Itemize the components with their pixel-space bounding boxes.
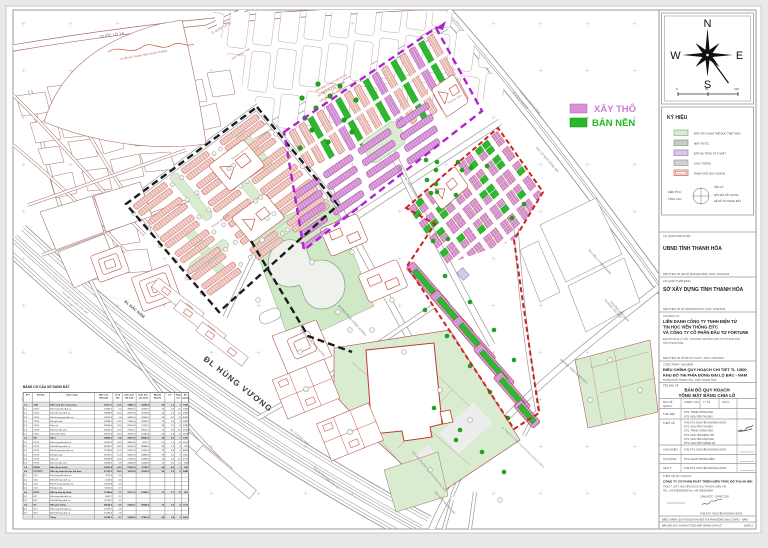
svg-text:14142.3: 14142.3: [141, 450, 150, 452]
svg-text:XÂY THÔ: XÂY THÔ: [594, 103, 636, 115]
svg-text:24177.2: 24177.2: [104, 403, 113, 406]
svg-text:KHU ĐÔ THỊ PHÍA ĐÔNG ĐẠI LỘ BẮ: KHU ĐÔ THỊ PHÍA ĐÔNG ĐẠI LỘ BẮC - NAM: [663, 373, 748, 378]
svg-text:NGÀY: NGÀY: [722, 400, 730, 404]
svg-text:Đất trung tâm dịch vụ: Đất trung tâm dịch vụ: [50, 408, 72, 411]
svg-text:39826.2: 39826.2: [127, 409, 136, 411]
svg-text:1132: 1132: [183, 504, 189, 506]
svg-text:SHEET: 1/64: SHEET: 1/64: [684, 400, 699, 404]
svg-text:36197.4: 36197.4: [127, 434, 136, 436]
svg-text:8294: 8294: [183, 417, 189, 419]
svg-text:Đất chợ dân sinh: Đất chợ dân sinh: [50, 462, 67, 465]
svg-text:1510: 1510: [183, 429, 189, 431]
svg-text:15513.8: 15513.8: [104, 484, 113, 486]
svg-text:CDV4: CDV4: [33, 421, 40, 423]
svg-text:39798.5: 39798.5: [104, 421, 113, 423]
svg-text:32308.3: 32308.3: [127, 517, 136, 519]
svg-text:E: E: [736, 50, 743, 62]
svg-text:KÈM THEO HS QĐ SỐ 2626/QĐ-UBND: KÈM THEO HS QĐ SỐ 2626/QĐ-UBND, NGÀY 10/…: [663, 273, 730, 276]
svg-text:63668.0: 63668.0: [104, 413, 113, 415]
svg-text:21558.7: 21558.7: [141, 492, 150, 494]
svg-text:42600.1: 42600.1: [141, 417, 150, 419]
svg-text:26305.5: 26305.5: [104, 409, 113, 411]
svg-text:CDV7: CDV7: [33, 434, 40, 436]
svg-text:Đất hỗn hợp dịch vụ: Đất hỗn hợp dịch vụ: [50, 412, 70, 415]
svg-text:Diện tích: Diện tích: [99, 394, 109, 397]
svg-text:13534.7: 13534.7: [127, 503, 136, 506]
svg-text:Mật độ: Mật độ: [154, 394, 162, 397]
svg-text:100: 100: [734, 87, 739, 91]
svg-text:58555.9: 58555.9: [141, 504, 150, 506]
svg-text:94090.9: 94090.9: [104, 459, 113, 461]
svg-text:16666.9: 16666.9: [127, 463, 136, 465]
svg-text:Đất cây xanh thể dục thể thao: Đất cây xanh thể dục thể thao: [50, 470, 82, 473]
svg-text:CDV1: CDV1: [33, 409, 40, 411]
svg-text:8630: 8630: [183, 450, 189, 452]
svg-text:Chức năng: Chức năng: [66, 394, 78, 397]
svg-text:50: 50: [705, 87, 709, 91]
svg-text:ĐỊA CHỈ SỐ 26 LÝ LỘC - PHƯỜNG: ĐỊA CHỈ SỐ 26 LÝ LỘC - PHƯỜNG TRƯỜNG SƠN…: [663, 338, 741, 341]
svg-text:Đất giao thông: Đất giao thông: [50, 503, 66, 506]
svg-text:42376.7: 42376.7: [141, 409, 150, 411]
svg-text:3012: 3012: [183, 442, 189, 444]
svg-text:VÀ CÔNG TY CỔ PHẦN ĐẦU TƯ FORT: VÀ CÔNG TY CỔ PHẦN ĐẦU TƯ FORTUNE: [663, 330, 748, 335]
svg-text:KÈM THEO HS SỐ 89 IO/TTr-EITC,: KÈM THEO HS SỐ 89 IO/TTr-EITC, NGÀY 25/0…: [663, 357, 725, 360]
svg-text:Diện tích: Diện tích: [138, 394, 148, 397]
svg-text:88149.2: 88149.2: [104, 446, 113, 448]
svg-text:Đất thương mại dịch vụ: Đất thương mại dịch vụ: [50, 416, 74, 419]
svg-text:XD (%): XD (%): [154, 398, 161, 400]
svg-text:đất (m2): đất (m2): [99, 397, 108, 400]
svg-text:46854.6: 46854.6: [141, 454, 150, 456]
svg-text:1399: 1399: [183, 438, 189, 440]
svg-text:Đất nhà ở xã hội: Đất nhà ở xã hội: [50, 466, 68, 469]
svg-text:người: người: [182, 398, 189, 400]
svg-text:Đất ở: Đất ở: [50, 437, 56, 440]
svg-text:BẢN ĐỒ QUY HOẠCH: BẢN ĐỒ QUY HOẠCH: [684, 388, 729, 393]
svg-text:TẦNG CAO: TẦNG CAO: [668, 197, 682, 201]
svg-text:Ký hiệu: Ký hiệu: [37, 394, 46, 397]
svg-text:CDV5: CDV5: [33, 425, 40, 427]
svg-text:89083.6: 89083.6: [141, 438, 150, 440]
svg-text:57810.2: 57810.2: [141, 517, 150, 519]
svg-text:27203.3: 27203.3: [127, 467, 136, 469]
svg-text:CÔNG TY CỔ PHẦN PHÁT TRIỂN KIẾ: CÔNG TY CỔ PHẦN PHÁT TRIỂN KIẾN TRÚC ĐÔ …: [663, 479, 752, 484]
svg-text:CDV2: CDV2: [33, 413, 40, 415]
svg-text:STT: STT: [26, 395, 31, 397]
svg-text:18766.7: 18766.7: [104, 517, 113, 519]
svg-text:CDV6: CDV6: [33, 429, 40, 431]
svg-text:Đất giáo dục: Đất giáo dục: [50, 487, 63, 490]
svg-text:OD: OD: [33, 438, 37, 440]
svg-text:W: W: [670, 50, 681, 62]
svg-text:29741.9: 29741.9: [104, 442, 113, 444]
svg-text:KÈM THEO HS SỐ 4545/SXD-PTĐT,: KÈM THEO HS SỐ 4545/SXD-PTĐT, NGÀY 12/06…: [663, 308, 726, 311]
svg-text:CX-TDTT: CX-TDTT: [33, 471, 43, 473]
svg-text:10733.7: 10733.7: [104, 509, 113, 511]
svg-text:32171.9: 32171.9: [127, 492, 136, 494]
svg-text:TEL: +84 0982893568 Fax: +84: TEL: +84 0982893568 Fax: +84 0982893568: [663, 490, 714, 493]
svg-text:17840.4: 17840.4: [127, 421, 136, 423]
svg-text:KÝ HIỆU: KÝ HIỆU: [667, 113, 688, 121]
svg-text:Đất chợ dân sinh: Đất chợ dân sinh: [50, 428, 67, 431]
svg-text:TẦNG 7, SỐ 7 NGUYỄN NGỌC NẠI,: TẦNG 7, SỐ 7 NGUYỄN NGỌC NẠI, THANH XUÂN…: [663, 486, 726, 489]
svg-text:QH03.2: QH03.2: [663, 404, 672, 408]
svg-text:96564.3: 96564.3: [104, 425, 113, 427]
svg-text:CDD: CDD: [33, 404, 38, 406]
svg-text:7545: 7545: [183, 403, 189, 406]
svg-text:5600: 5600: [183, 454, 189, 456]
svg-text:ODT1: ODT1: [33, 442, 40, 444]
svg-text:1992: 1992: [183, 421, 189, 423]
svg-text:54392.4: 54392.4: [141, 403, 150, 406]
svg-text:ODT6: ODT6: [33, 463, 40, 465]
svg-text:Tổng: Tổng: [50, 516, 56, 519]
svg-text:Tỷ lệ: Tỷ lệ: [115, 394, 121, 397]
svg-text:89716.7: 89716.7: [104, 454, 113, 456]
svg-text:34172.3: 34172.3: [127, 437, 136, 440]
svg-text:Đất thương mại dịch vụ: Đất thương mại dịch vụ: [50, 483, 74, 486]
svg-text:16720.7: 16720.7: [104, 500, 113, 502]
svg-text:Đất hỗn hợp dịch vụ: Đất hỗn hợp dịch vụ: [50, 445, 70, 448]
svg-text:Đất giáo dục: Đất giáo dục: [50, 420, 63, 423]
svg-text:NOXH: NOXH: [33, 467, 40, 469]
svg-text:67763.3: 67763.3: [104, 471, 113, 473]
svg-text:64856.0: 64856.0: [141, 459, 150, 461]
svg-text:T.C: T.C: [168, 395, 172, 397]
svg-text:UBND TỈNH THANH HÓA: UBND TỈNH THANH HÓA: [663, 244, 722, 252]
svg-text:86132.6: 86132.6: [104, 434, 113, 436]
svg-text:2663: 2663: [183, 517, 189, 519]
svg-text:6642.7: 6642.7: [105, 496, 112, 498]
svg-text:5286: 5286: [183, 425, 189, 427]
svg-text:(%): (%): [116, 398, 120, 400]
svg-text:ODT4: ODT4: [33, 454, 40, 456]
svg-text:58632.5: 58632.5: [104, 429, 113, 431]
svg-text:Đất hỗn hợp dịch vụ: Đất hỗn hợp dịch vụ: [50, 512, 70, 515]
svg-text:17304.5: 17304.5: [127, 459, 136, 461]
svg-text:16193.5: 16193.5: [104, 513, 113, 515]
svg-text:ODT5: ODT5: [33, 459, 40, 461]
svg-text:10119.8: 10119.8: [128, 471, 137, 473]
svg-text:83612.2: 83612.2: [141, 429, 150, 431]
svg-text:2848: 2848: [183, 470, 189, 473]
svg-text:30475.8: 30475.8: [104, 417, 113, 419]
svg-text:31796.7: 31796.7: [141, 467, 150, 469]
svg-text:Diện tích: Diện tích: [125, 394, 135, 397]
svg-text:27162.3: 27162.3: [141, 425, 150, 427]
svg-text:27311.1: 27311.1: [128, 429, 137, 431]
svg-text:25103.3: 25103.3: [127, 425, 136, 427]
svg-text:28853.0: 28853.0: [104, 438, 113, 440]
svg-text:Đất trung tâm dịch vụ: Đất trung tâm dịch vụ: [50, 508, 72, 511]
svg-text:Đất giáo dục: Đất giáo dục: [50, 453, 63, 456]
svg-text:cao: cao: [176, 398, 180, 400]
svg-text:sàn (m2): sàn (m2): [139, 398, 148, 400]
svg-text:XD (m2): XD (m2): [125, 398, 134, 400]
svg-text:N: N: [704, 18, 712, 30]
svg-text:ODT2: ODT2: [33, 446, 40, 448]
svg-text:18470.3: 18470.3: [127, 454, 136, 456]
svg-text:55068.3: 55068.3: [104, 463, 113, 465]
svg-text:20974.9: 20974.9: [127, 413, 136, 415]
svg-text:TỈNH THANH HÓA: TỈNH THANH HÓA: [663, 342, 684, 345]
svg-text:BẢNG CƠ CẤU SỬ DỤNG ĐẤT: BẢNG CƠ CẤU SỬ DỤNG ĐẤT: [23, 384, 69, 389]
svg-text:14861.2: 14861.2: [127, 403, 136, 406]
svg-text:Đất y tế: Đất y tế: [50, 458, 58, 461]
svg-text:Đất thương mại dịch vụ: Đất thương mại dịch vụ: [50, 449, 74, 452]
svg-text:LIÊN DANH CÔNG TY TNHH ĐIỆN TỬ: LIÊN DANH CÔNG TY TNHH ĐIỆN TỬ: [663, 319, 738, 324]
svg-text:Tổng: Tổng: [176, 394, 182, 397]
svg-text:4714: 4714: [183, 459, 189, 461]
svg-text:7572.3: 7572.3: [105, 475, 112, 477]
svg-text:24457.6: 24457.6: [127, 450, 136, 452]
svg-text:Đất hạ tầng kỹ thuật: Đất hạ tầng kỹ thuật: [50, 491, 71, 494]
svg-text:62919.8: 62919.8: [104, 467, 113, 469]
svg-text:52238.9: 52238.9: [141, 463, 150, 465]
svg-text:34634.5: 34634.5: [127, 417, 136, 419]
svg-text:Đất y tế: Đất y tế: [50, 424, 58, 427]
svg-text:4072.7: 4072.7: [142, 442, 149, 444]
svg-text:TỔNG MẶT BẰNG CHIA LÔ: TỔNG MẶT BẰNG CHIA LÔ: [679, 393, 736, 398]
svg-text:84209.2: 84209.2: [141, 421, 150, 423]
svg-text:20139.6: 20139.6: [104, 450, 113, 452]
svg-text:85624.9: 85624.9: [104, 503, 113, 506]
svg-text:20266.3: 20266.3: [127, 446, 136, 448]
svg-text:Đất hỗn hợp dịch vụ: Đất hỗn hợp dịch vụ: [50, 499, 70, 502]
svg-text:Đất hỗn hợp dịch vụ: Đất hỗn hợp dịch vụ: [50, 478, 70, 481]
svg-text:11514.4: 11514.4: [104, 488, 113, 490]
svg-text:Đất trung tâm công cộng: Đất trung tâm công cộng: [50, 403, 77, 406]
svg-text:66738.5: 66738.5: [141, 413, 150, 415]
svg-text:TIN HỌC VIỄN THÔNG EITC: TIN HỌC VIỄN THÔNG EITC: [663, 325, 718, 330]
svg-text:Đất hành chính: Đất hành chính: [50, 433, 66, 436]
svg-text:5340: 5340: [183, 413, 189, 415]
svg-text:CDV3: CDV3: [33, 417, 40, 419]
svg-text:6218.0: 6218.0: [105, 479, 112, 481]
svg-text:Đất trung tâm dịch vụ: Đất trung tâm dịch vụ: [50, 474, 72, 477]
svg-text:ĐIỀU CHỈNH QUY HOẠCH CHI TIẾT: ĐIỀU CHỈNH QUY HOẠCH CHI TIẾT TL 1/500: [663, 367, 747, 372]
svg-text:34923.4: 34923.4: [127, 442, 136, 444]
svg-text:1398: 1398: [183, 409, 189, 411]
svg-text:Đất trung tâm dịch vụ: Đất trung tâm dịch vụ: [50, 495, 72, 498]
svg-text:ODT3: ODT3: [33, 450, 40, 452]
svg-text:89866.0: 89866.0: [141, 446, 150, 448]
svg-text:QH03.2: QH03.2: [744, 524, 753, 528]
svg-text:31346.4: 31346.4: [104, 491, 113, 494]
svg-text:HTKT: HTKT: [33, 492, 39, 494]
svg-text:THÀNH PHỐ THANH HÓA - TỈNH THA: THÀNH PHỐ THANH HÓA - TỈNH THANH HÓA: [663, 379, 717, 382]
svg-text:41122.5: 41122.5: [141, 470, 150, 473]
svg-text:Đất trung tâm dịch vụ: Đất trung tâm dịch vụ: [50, 441, 72, 444]
svg-text:SỞ XÂY DỰNG TỈNH THANH HÓA: SỞ XÂY DỰNG TỈNH THANH HÓA: [663, 285, 744, 293]
svg-text:51262.8: 51262.8: [141, 434, 150, 436]
svg-text:BÁN NỀN: BÁN NỀN: [592, 118, 635, 129]
svg-text:GĐ.K.T: GĐ.K.T: [663, 466, 672, 470]
svg-text:5183: 5183: [183, 434, 189, 436]
